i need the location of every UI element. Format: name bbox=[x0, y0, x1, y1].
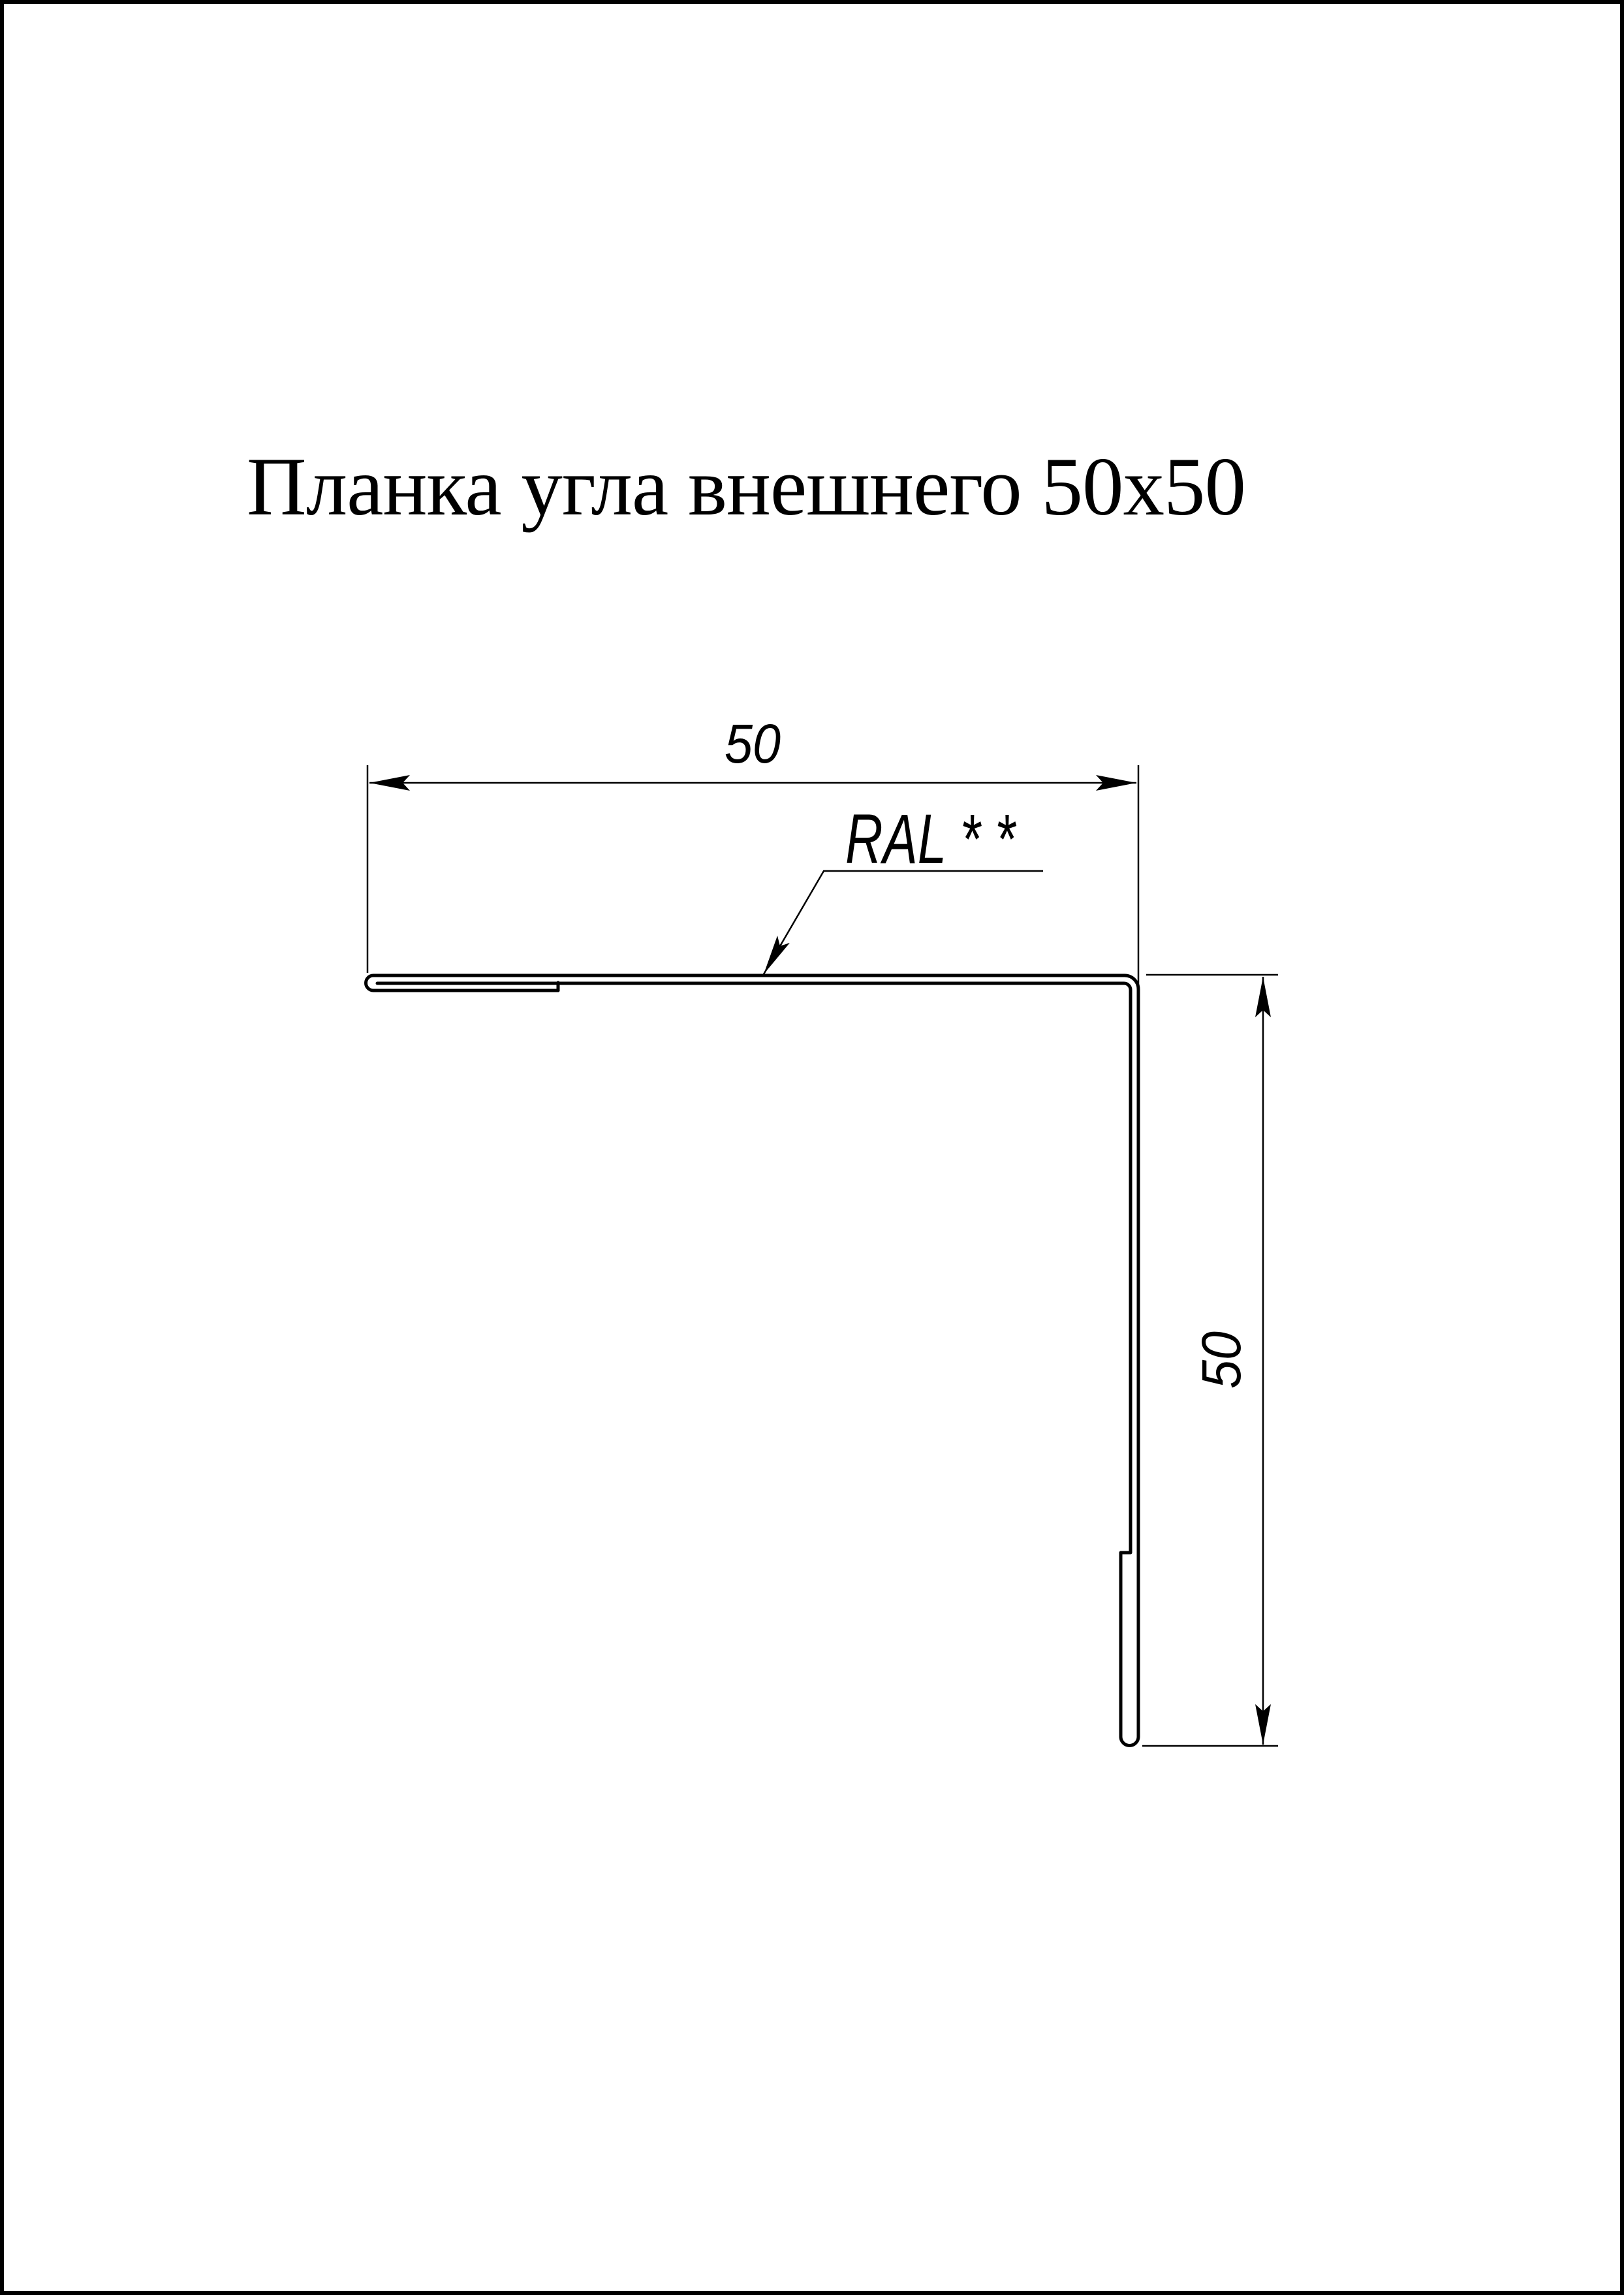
dimension-width-value: 50 bbox=[725, 713, 781, 774]
dimension-width: 50 bbox=[367, 713, 1138, 991]
coating-label: RAL * * bbox=[845, 799, 1016, 878]
drawing-sheet: Планка угла внешнего 50х50 50 50 bbox=[0, 0, 1624, 2295]
profile-outline bbox=[366, 975, 1139, 1745]
profile-cross-section bbox=[366, 975, 1139, 1745]
leader-line bbox=[764, 871, 1043, 974]
leader-arrowhead bbox=[764, 936, 790, 974]
coating-callout: RAL * * bbox=[764, 799, 1043, 974]
dimension-height-value: 50 bbox=[1191, 1331, 1252, 1389]
drawing-canvas: 50 50 RAL * * bbox=[4, 4, 1620, 2291]
dimension-height: 50 bbox=[1142, 975, 1278, 1746]
